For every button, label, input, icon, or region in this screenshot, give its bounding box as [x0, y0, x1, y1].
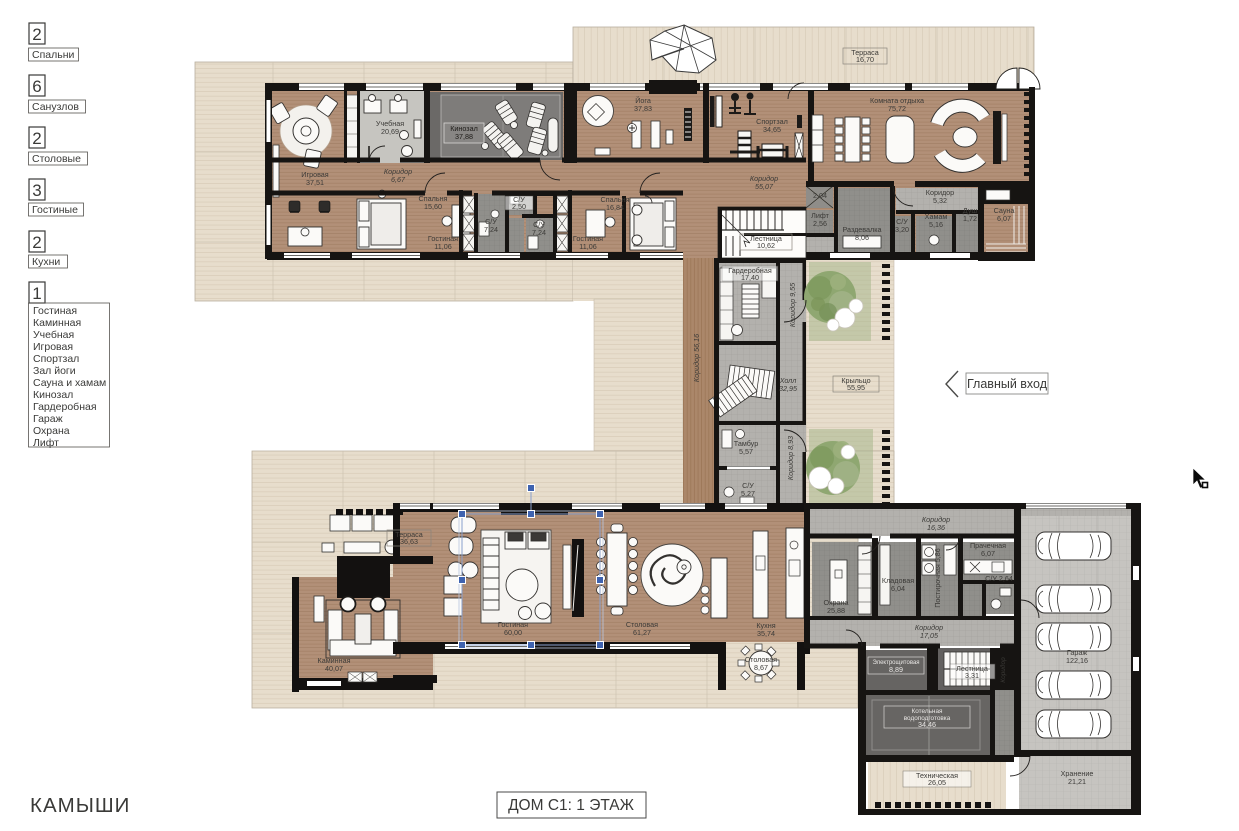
svg-text:3: 3 [32, 181, 41, 200]
svg-text:5,57: 5,57 [739, 447, 753, 456]
svg-text:Гостиные: Гостиные [32, 204, 78, 216]
svg-text:25,88: 25,88 [827, 606, 845, 615]
svg-text:34,65: 34,65 [763, 125, 781, 134]
svg-text:55,95: 55,95 [847, 383, 865, 392]
svg-text:7,24: 7,24 [532, 228, 546, 237]
svg-text:34,46: 34,46 [918, 720, 936, 729]
svg-text:55,07: 55,07 [755, 182, 774, 191]
svg-text:Главный вход: Главный вход [967, 377, 1048, 391]
svg-text:Коридор 8,93: Коридор 8,93 [786, 436, 795, 480]
svg-text:6,07: 6,07 [981, 549, 995, 558]
svg-text:Кухни: Кухни [32, 256, 60, 268]
svg-text:Гараж: Гараж [33, 413, 63, 425]
svg-text:6,07: 6,07 [997, 214, 1011, 223]
svg-text:5,27: 5,27 [741, 489, 755, 498]
svg-text:16,84: 16,84 [606, 203, 624, 212]
svg-text:37,83: 37,83 [634, 104, 652, 113]
svg-text:3,20: 3,20 [895, 225, 909, 234]
svg-text:5,32: 5,32 [933, 196, 947, 205]
svg-text:Постирочная 5,86: Постирочная 5,86 [933, 548, 942, 608]
svg-text:Санузлов: Санузлов [32, 101, 79, 113]
svg-text:17,05: 17,05 [920, 631, 939, 640]
svg-text:16,70: 16,70 [856, 55, 874, 64]
svg-text:2: 2 [32, 25, 41, 44]
svg-text:Коридор 56,16: Коридор 56,16 [692, 334, 701, 382]
svg-text:26,05: 26,05 [928, 778, 946, 787]
svg-text:ДОМ С1: 1 ЭТАЖ: ДОМ С1: 1 ЭТАЖ [508, 797, 635, 814]
svg-text:2: 2 [32, 129, 41, 148]
svg-text:40,07: 40,07 [325, 664, 343, 673]
svg-text:37,88: 37,88 [455, 132, 473, 141]
svg-text:8,06: 8,06 [855, 233, 869, 242]
svg-text:36,63: 36,63 [400, 537, 418, 546]
svg-text:7,24: 7,24 [484, 225, 498, 234]
svg-text:Сауна и хамам: Сауна и хамам [33, 377, 106, 389]
svg-text:Каминная: Каминная [33, 317, 81, 329]
svg-text:1,72: 1,72 [963, 214, 977, 223]
svg-text:Лифт: Лифт [33, 437, 59, 449]
svg-text:17,40: 17,40 [741, 273, 759, 282]
svg-text:Коридор: Коридор [999, 657, 1007, 683]
svg-text:21,21: 21,21 [1068, 777, 1086, 786]
svg-text:32,95: 32,95 [779, 384, 798, 393]
svg-text:С/У 2,64: С/У 2,64 [985, 574, 1013, 583]
svg-text:Спортзал: Спортзал [33, 353, 79, 365]
svg-text:Зал йоги: Зал йоги [33, 365, 76, 377]
svg-text:8,67: 8,67 [754, 663, 768, 672]
svg-text:Гардеробная: Гардеробная [33, 401, 97, 413]
svg-text:Учебная: Учебная [33, 329, 74, 341]
svg-text:75,72: 75,72 [888, 104, 906, 113]
svg-text:Кинозал: Кинозал [33, 389, 73, 401]
svg-text:Столовые: Столовые [32, 153, 81, 165]
svg-text:6,67: 6,67 [391, 175, 406, 184]
svg-text:Котельная: Котельная [912, 708, 943, 715]
svg-text:11,06: 11,06 [579, 242, 596, 251]
svg-text:35,74: 35,74 [757, 629, 775, 638]
svg-text:11,06: 11,06 [434, 242, 451, 251]
svg-text:Гостиная: Гостиная [33, 305, 77, 317]
svg-text:6,04: 6,04 [891, 584, 905, 593]
svg-text:3,31: 3,31 [965, 671, 979, 680]
svg-text:2,04: 2,04 [813, 191, 827, 200]
svg-text:122,16: 122,16 [1066, 656, 1088, 665]
svg-text:Охрана: Охрана [33, 425, 70, 437]
svg-text:10,62: 10,62 [757, 241, 775, 250]
svg-text:2,56: 2,56 [813, 219, 827, 228]
svg-text:Коридор 9,55: Коридор 9,55 [788, 282, 797, 327]
svg-text:КАМЫШИ: КАМЫШИ [30, 794, 130, 817]
svg-text:2: 2 [32, 233, 41, 252]
svg-text:1: 1 [32, 284, 41, 303]
svg-text:6: 6 [32, 77, 41, 96]
svg-text:60,00: 60,00 [504, 628, 522, 637]
svg-text:15,60: 15,60 [424, 202, 442, 211]
svg-text:20,69: 20,69 [381, 127, 399, 136]
svg-text:2,50: 2,50 [512, 202, 526, 211]
svg-text:16,36: 16,36 [927, 523, 945, 532]
svg-text:5,16: 5,16 [929, 220, 943, 229]
svg-text:61,27: 61,27 [633, 628, 651, 637]
svg-text:Игровая: Игровая [33, 341, 73, 353]
svg-text:37,51: 37,51 [306, 178, 324, 187]
svg-text:Спальни: Спальни [32, 49, 75, 61]
svg-text:8,89: 8,89 [889, 665, 903, 674]
